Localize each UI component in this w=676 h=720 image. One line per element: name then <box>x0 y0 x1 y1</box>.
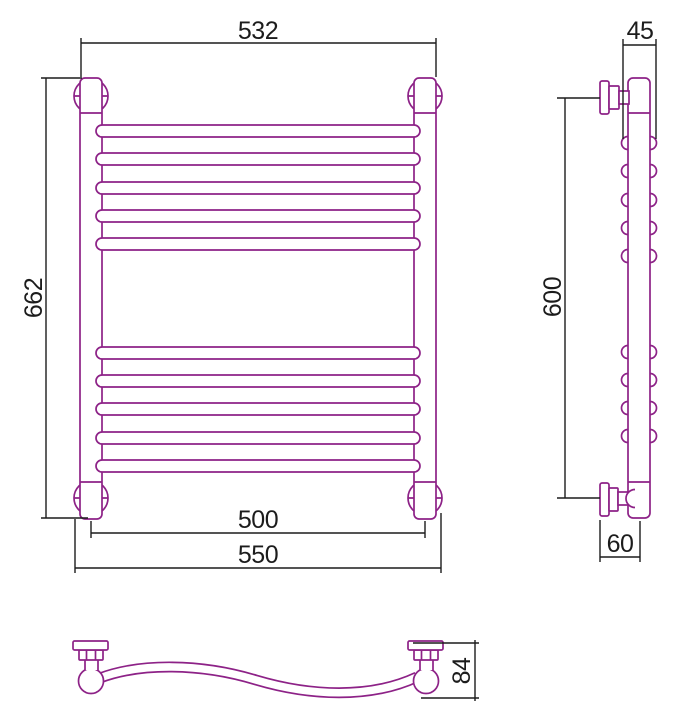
top-left-mount <box>73 641 108 670</box>
dim-bracket-spacing: 600 <box>539 98 600 498</box>
front-rungs <box>96 125 420 472</box>
front-bracket-circles <box>74 79 442 515</box>
front-vertical-pipes <box>80 78 436 519</box>
dim-connection-spacing-label: 550 <box>238 541 278 569</box>
side-view: 45 600 60 <box>539 17 657 562</box>
side-top-bracket <box>600 81 629 114</box>
side-pipe <box>628 78 650 518</box>
dim-side-width-label: 45 <box>627 17 654 45</box>
dim-wall-offset: 60 <box>600 520 640 562</box>
front-fitting-lines <box>80 113 436 482</box>
dim-overall-width: 532 <box>81 17 436 77</box>
dim-axis-spacing: 500 <box>91 506 425 538</box>
drawing-canvas: 532 662 500 550 <box>0 0 676 720</box>
top-wave-tube <box>100 667 417 693</box>
dim-overall-width-label: 532 <box>238 17 278 45</box>
top-view: 84 <box>73 640 479 701</box>
dim-depth-label: 84 <box>448 657 476 684</box>
dim-axis-spacing-label: 500 <box>238 506 278 534</box>
front-view: 532 662 500 550 <box>20 17 442 573</box>
top-right-pipe-section <box>414 669 439 694</box>
dim-overall-height: 662 <box>20 78 88 518</box>
technical-drawing-towel-rail: 532 662 500 550 <box>0 0 676 720</box>
top-right-mount <box>408 641 443 670</box>
top-left-pipe-section <box>79 669 104 694</box>
dim-overall-height-label: 662 <box>20 278 48 318</box>
dim-bracket-spacing-label: 600 <box>539 277 567 317</box>
dim-wall-offset-label: 60 <box>607 530 634 558</box>
